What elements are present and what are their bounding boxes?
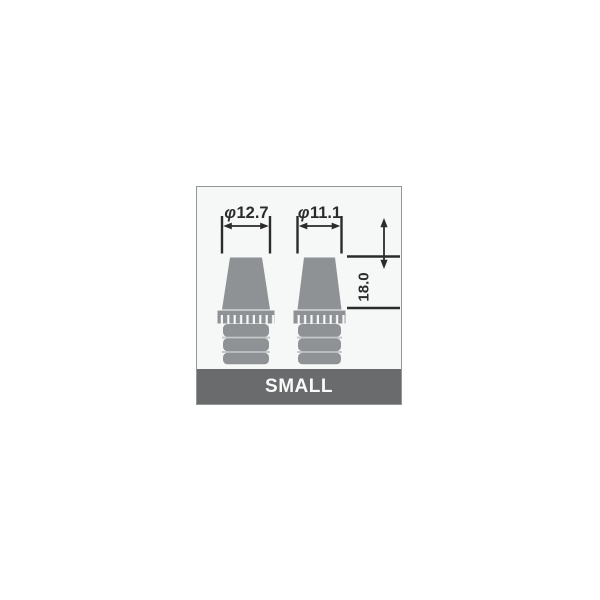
plug-large-cone: [222, 258, 270, 310]
dimension-left-diameter: φ12.7: [222, 204, 270, 254]
arrowhead-left: [299, 223, 308, 230]
diameter-label-right: φ11.1: [298, 204, 341, 222]
diameter-label-left: φ12.7: [224, 204, 268, 222]
plug-small-rib-separator: [297, 337, 342, 339]
plug-large-collar: [218, 311, 275, 316]
size-banner: SMALL: [197, 369, 401, 404]
phi-symbol: φ: [298, 204, 310, 222]
product-size-card: φ12.7 φ11.1: [196, 186, 402, 405]
plug-large-rib: [223, 353, 269, 365]
height-label: 18.0: [356, 272, 373, 301]
plug-small: [294, 258, 346, 365]
dimension-diagram: φ12.7 φ11.1: [197, 187, 401, 369]
dimension-right-diameter: φ11.1: [298, 204, 342, 254]
diameter-value: 12.7: [237, 204, 269, 222]
plug-large-rib: [223, 324, 269, 337]
diagram-canvas: φ12.7 φ11.1: [197, 187, 401, 369]
page-background: φ12.7 φ11.1: [0, 0, 600, 600]
arrowhead-up: [380, 218, 387, 227]
plug-small-rib: [298, 324, 341, 337]
dimension-height: 18.0: [347, 218, 400, 308]
plug-large-knurl-band: [218, 315, 275, 324]
plug-large: [218, 258, 275, 365]
plug-small-rib: [298, 353, 341, 365]
plug-small-collar: [294, 311, 346, 316]
phi-symbol: φ: [224, 204, 236, 222]
plug-small-rib: [298, 338, 341, 351]
plug-large-rib-separator: [222, 351, 270, 353]
arrowhead-left: [223, 223, 232, 230]
plug-small-knurl-band: [294, 315, 346, 324]
arrowhead-right: [332, 223, 341, 230]
plug-small-rib-separator: [297, 351, 342, 353]
plug-large-rib: [223, 338, 269, 351]
size-label: SMALL: [265, 377, 333, 396]
arrowhead-down: [380, 260, 387, 269]
arrowhead-right: [260, 223, 269, 230]
diameter-value: 11.1: [310, 204, 341, 222]
plug-small-cone: [298, 258, 342, 310]
plug-large-rib-separator: [222, 337, 270, 339]
